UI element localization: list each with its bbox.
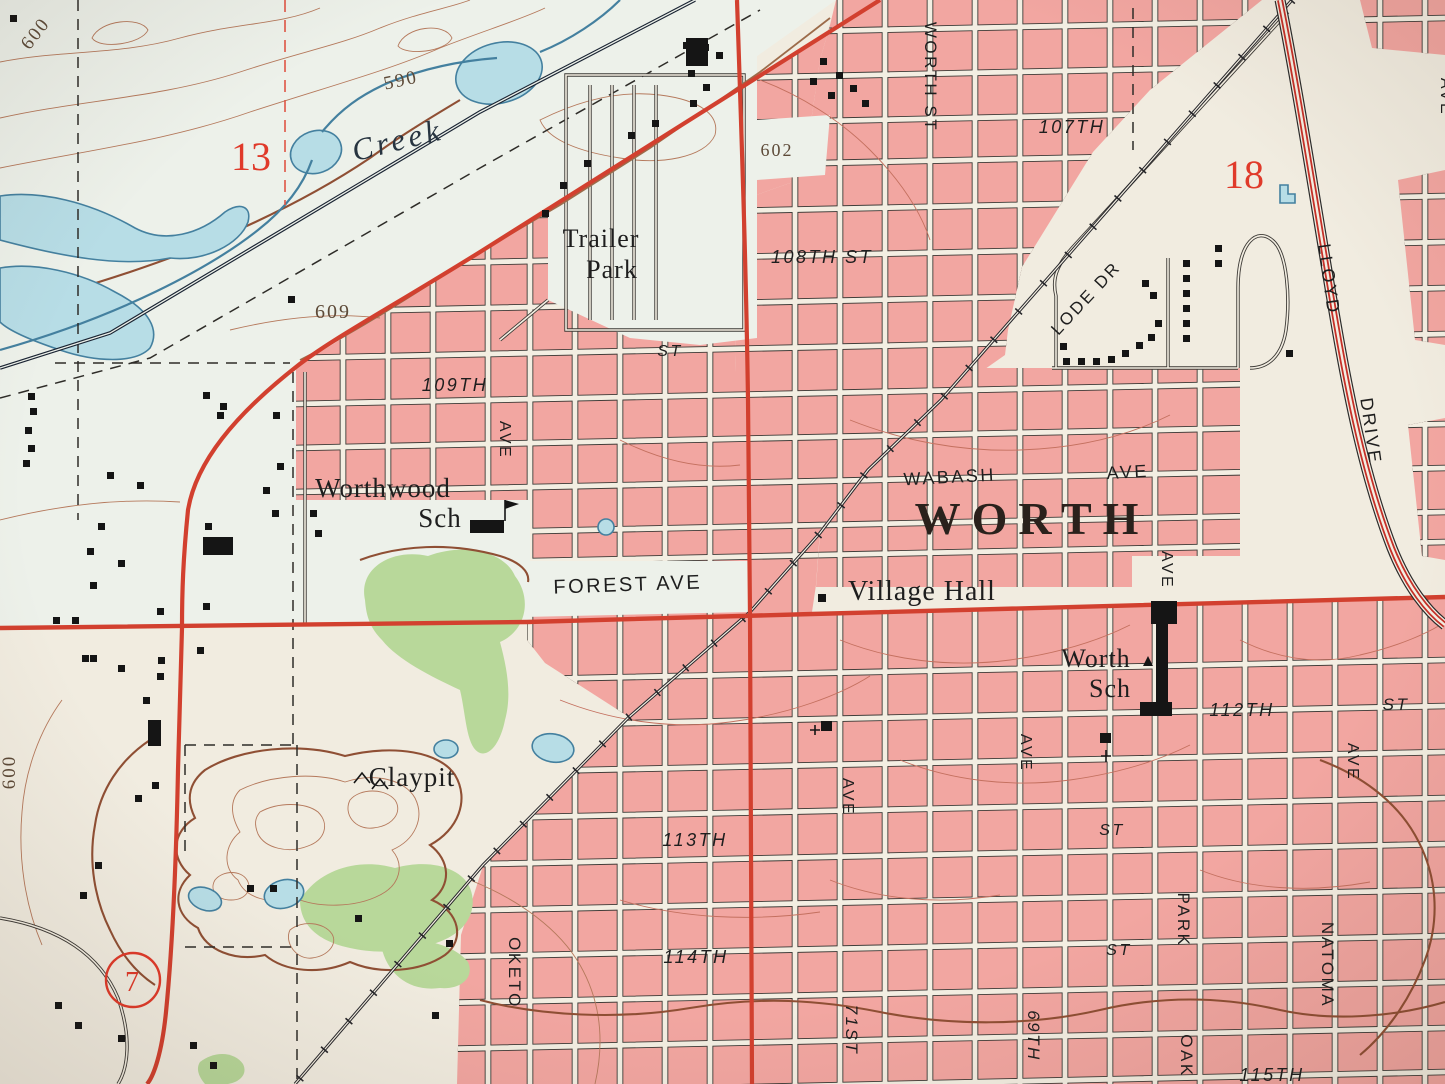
map-canvas: 60059013Creek609602TrailerPark108TH STWO… (0, 0, 1445, 1084)
photo-vignette (0, 0, 1445, 1084)
topographic-map-photo: 60059013Creek609602TrailerPark108TH STWO… (0, 0, 1445, 1084)
